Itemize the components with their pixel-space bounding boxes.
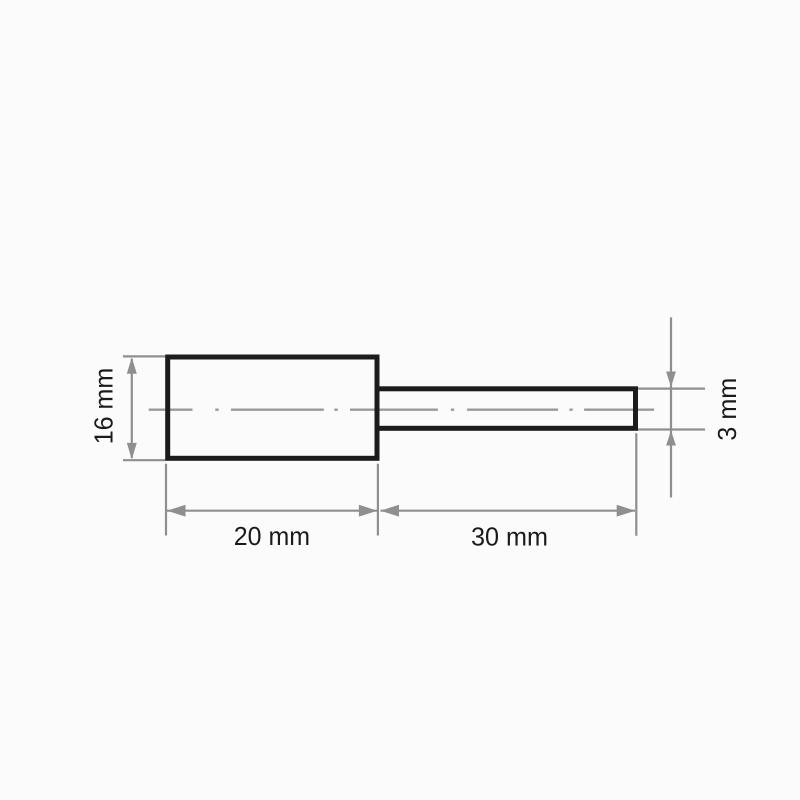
svg-text:20 mm: 20 mm xyxy=(234,521,310,551)
svg-text:16 mm: 16 mm xyxy=(89,368,119,445)
svg-text:30 mm: 30 mm xyxy=(471,522,548,552)
svg-text:3 mm: 3 mm xyxy=(712,378,742,441)
